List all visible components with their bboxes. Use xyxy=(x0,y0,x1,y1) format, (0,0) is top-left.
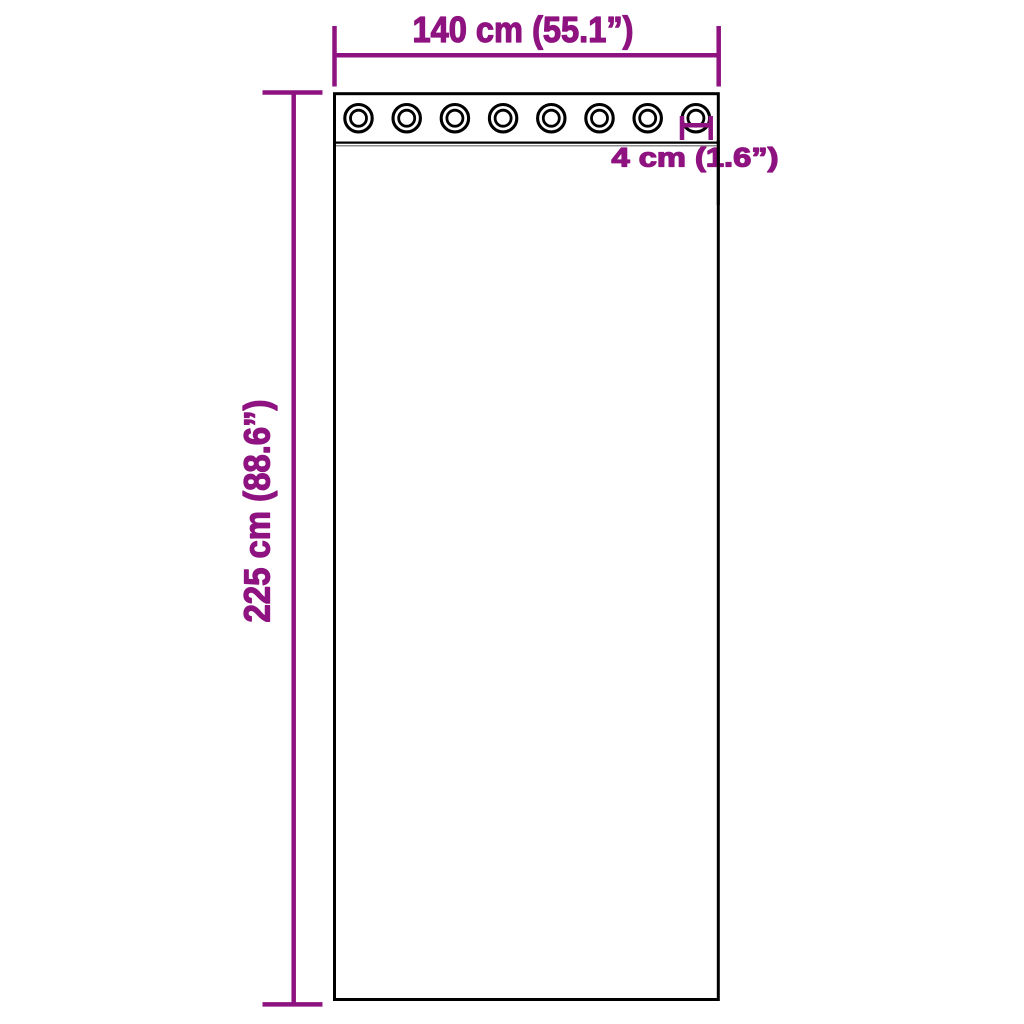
svg-text:225 cm (88.6”): 225 cm (88.6”) xyxy=(236,400,277,623)
svg-text:140 cm (55.1”): 140 cm (55.1”) xyxy=(413,9,634,50)
svg-text:4 cm (1.6”): 4 cm (1.6”) xyxy=(612,143,779,173)
